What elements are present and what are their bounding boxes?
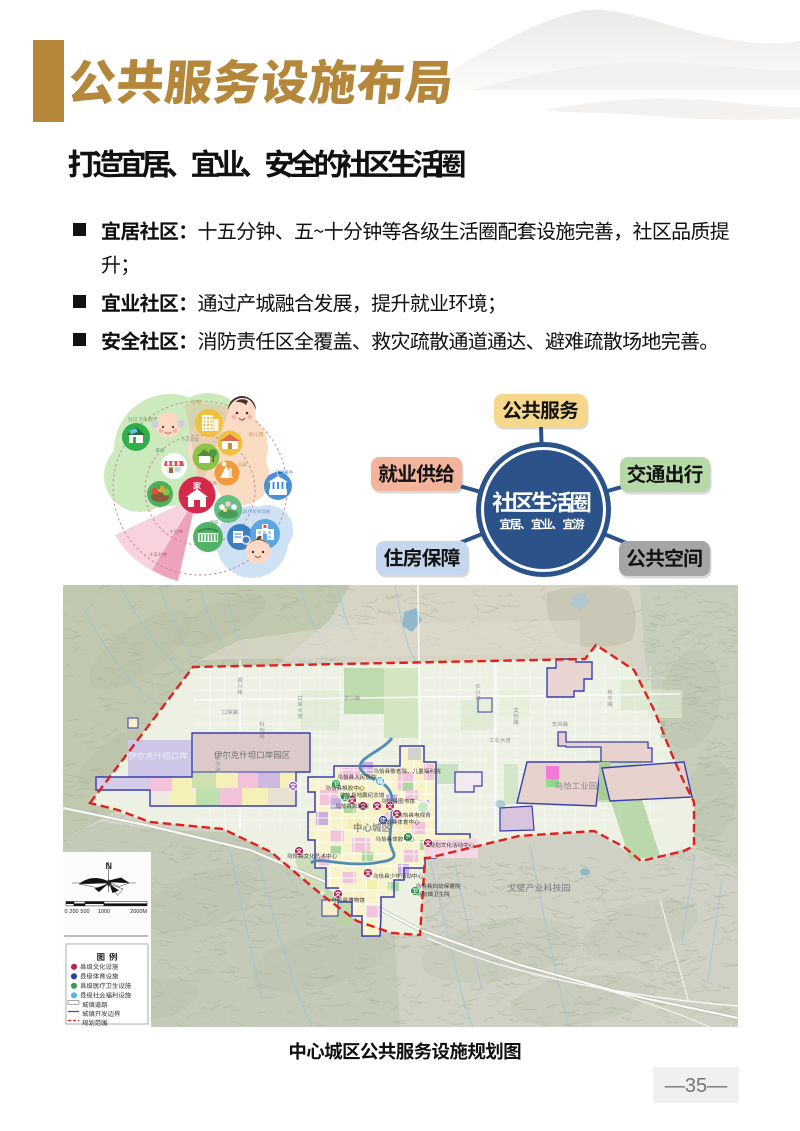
svg-text:2000M: 2000M [130,909,147,915]
svg-text:500: 500 [80,909,89,915]
svg-text:1000: 1000 [98,909,110,915]
svg-text:—35—: —35— [665,1075,727,1097]
svg-text:0: 0 [64,909,67,915]
svg-text:200: 200 [69,909,78,915]
